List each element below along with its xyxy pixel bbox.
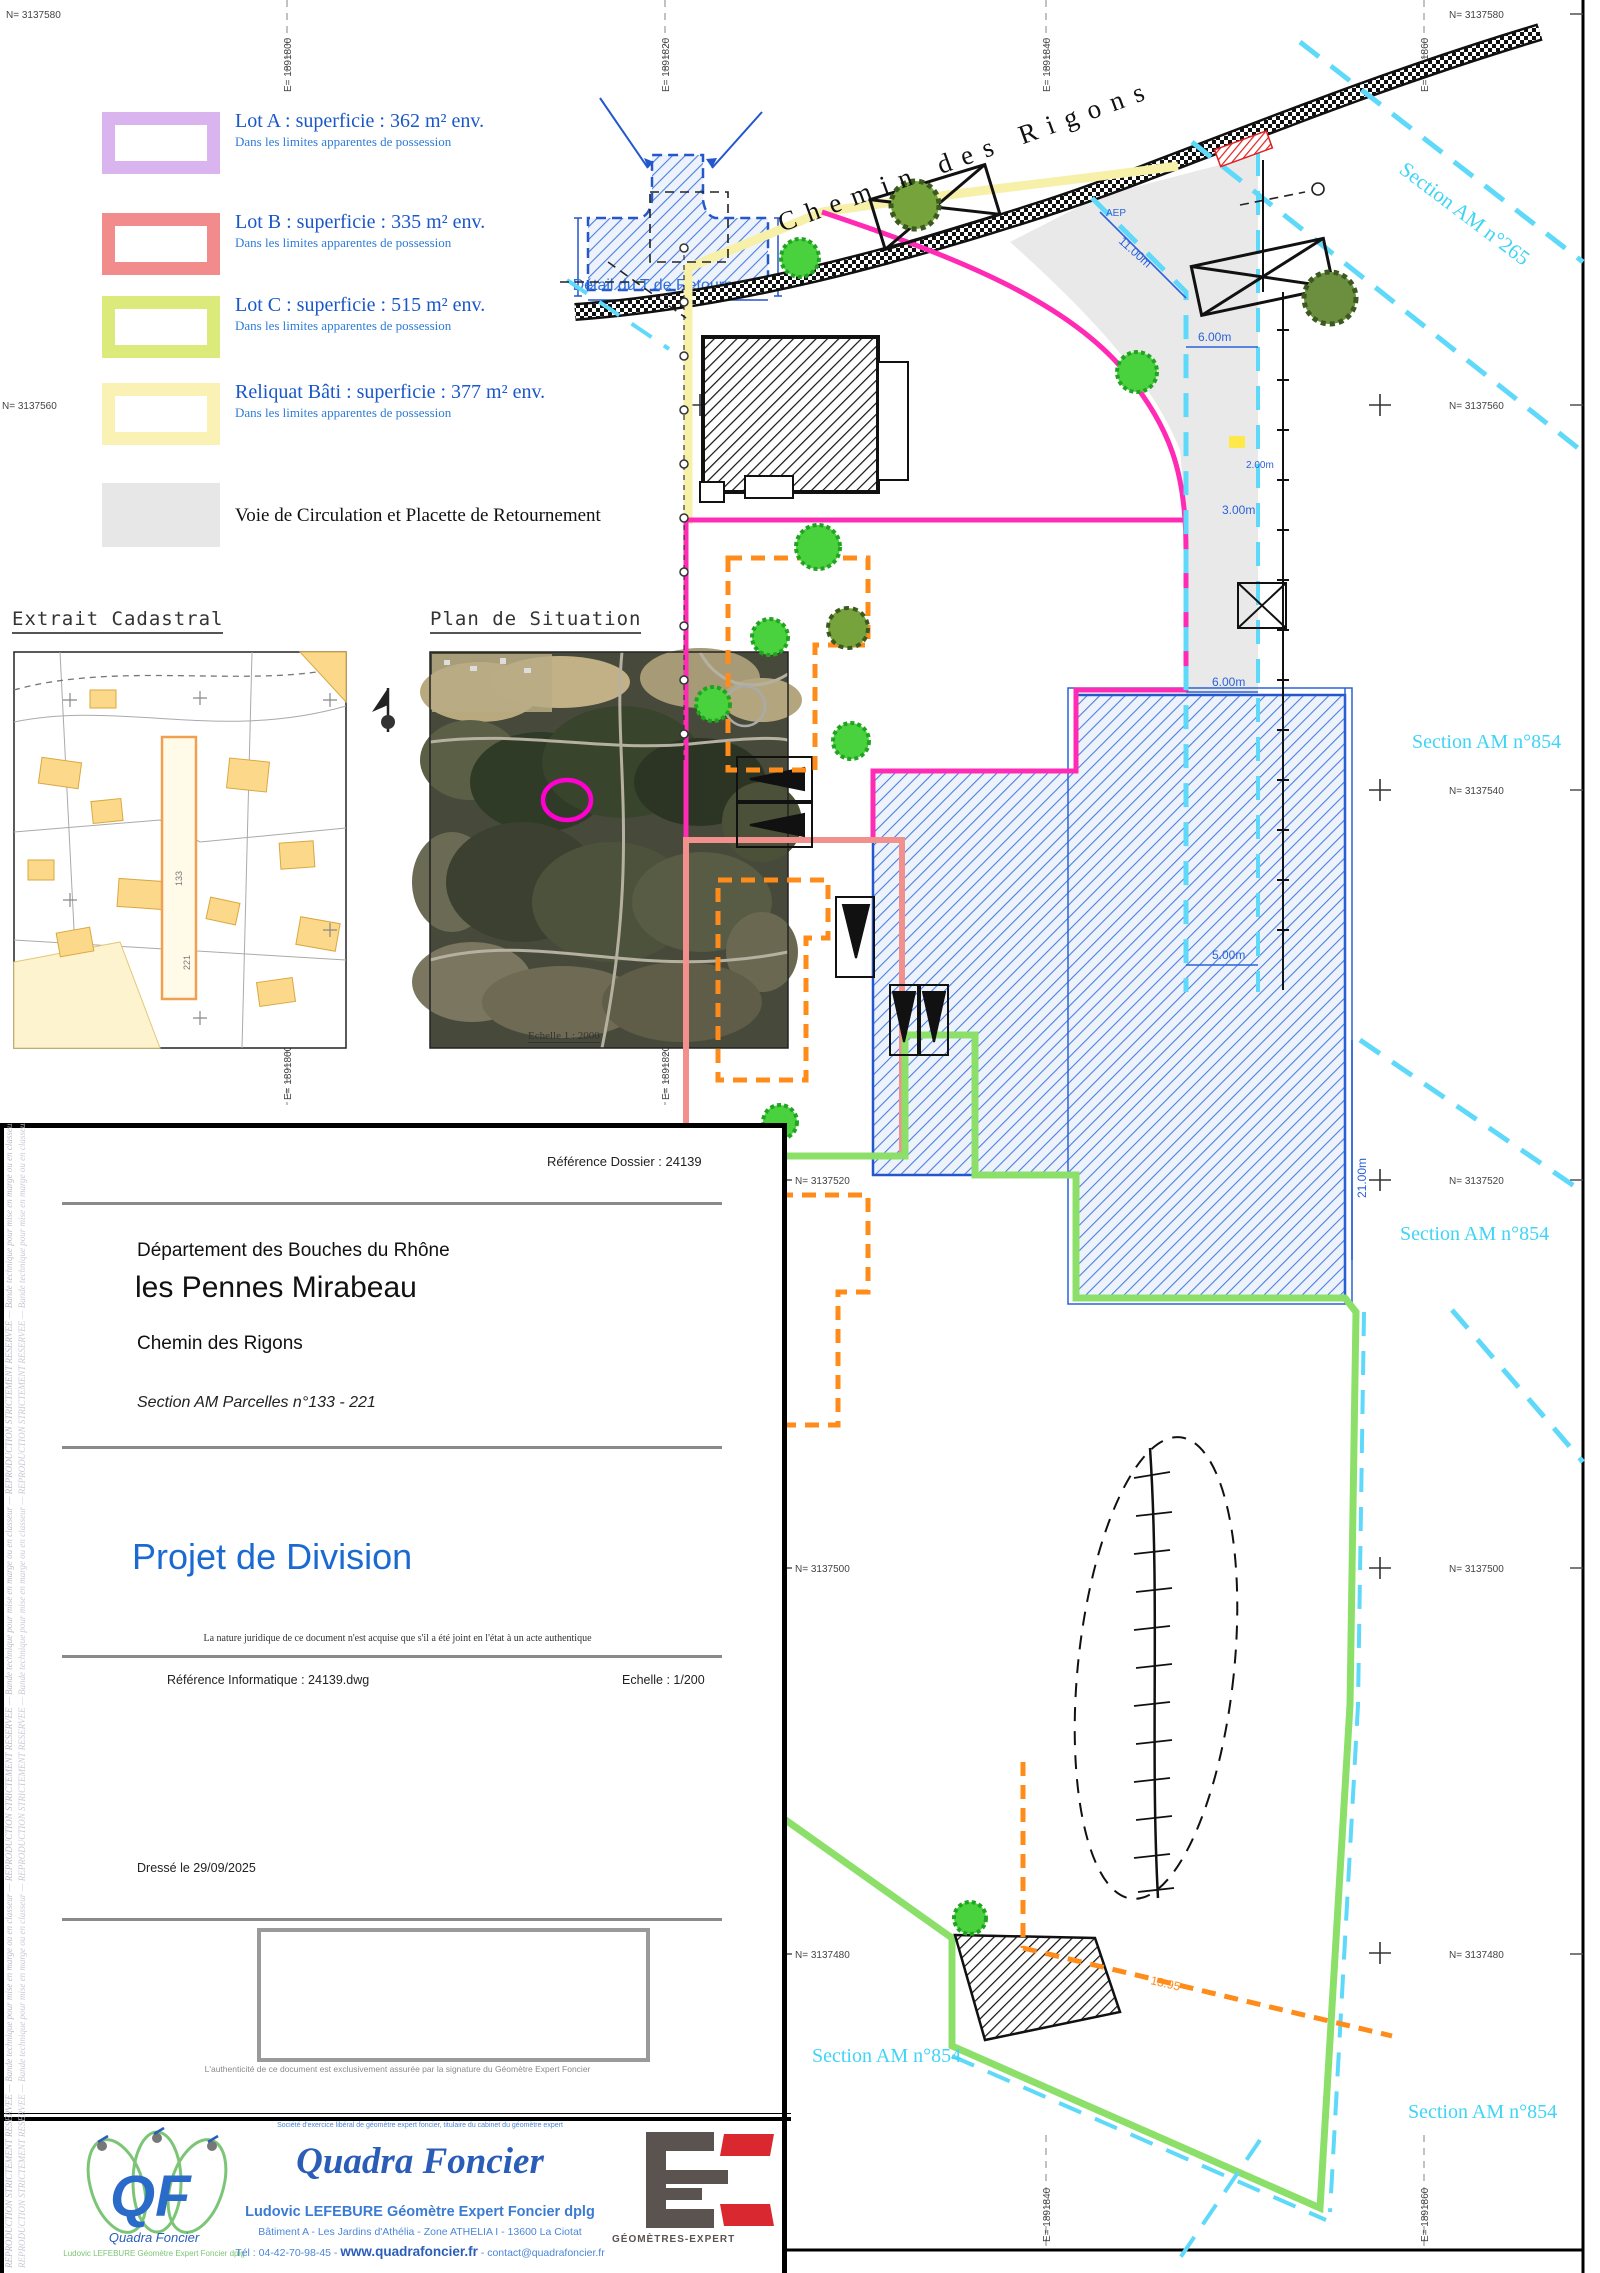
lot-c-swatch (102, 296, 220, 358)
legend-item-lot-c: Lot C : superficie : 515 m² env. Dans le… (100, 296, 620, 360)
section-854-label: Section AM n°854 (812, 2045, 961, 2067)
n-label: N= 3137580 (6, 10, 61, 21)
phone: Tél : 04-42-70-98-45 - (235, 2247, 340, 2259)
legend-title: Lot B : superficie : 335 m² env. (235, 211, 615, 234)
svg-text:QF: QF (110, 2164, 192, 2229)
e-label: E= 1891840 (1042, 2187, 1053, 2242)
nature-juridique: La nature juridique de ce document n'est… (4, 1633, 791, 1644)
legend-title: Lot C : superficie : 515 m² env. (235, 294, 615, 317)
date-dresse: Dressé le 29/09/2025 (137, 1861, 256, 1875)
footer-tagline: Société d'exercice libéral de géomètre e… (210, 2122, 630, 2129)
dim-label: 21.00m (1355, 1158, 1369, 1198)
company-address: Bâtiment A - Les Jardins d'Athélia - Zon… (200, 2226, 640, 2238)
legend-item-reliquat: Reliquat Bâti : superficie : 377 m² env.… (100, 383, 620, 447)
parcel-number: 221 (182, 955, 192, 970)
legend-sub: Dans les limites apparentes de possessio… (235, 235, 615, 251)
dim-label: 2.00m (1246, 460, 1274, 471)
authenticite-note: L'authenticité de ce document est exclus… (4, 2064, 791, 2074)
n-label: N= 3137500 (795, 1564, 850, 1575)
legend-title: Voie de Circulation et Placette de Retou… (235, 505, 601, 527)
legend-title: Reliquat Bâti : superficie : 377 m² env. (235, 381, 615, 404)
ditch-talus (1054, 1429, 1258, 1907)
cadastral-extract: 133 221 (14, 652, 346, 1048)
voie-swatch (102, 483, 220, 547)
legend-title: Lot A : superficie : 362 m² env. (235, 110, 615, 133)
footer: QF Quadra Foncier Ludovic LEFEBURE Géomè… (0, 2116, 787, 2273)
e-label: E= 1891820 (661, 1045, 672, 1100)
dim-label: 6.00m (1212, 675, 1245, 689)
departement: Département des Bouches du Rhône (137, 1240, 450, 1262)
dim-label: 6.00m (1198, 330, 1231, 344)
situation-title: Plan de Situation (430, 608, 641, 634)
qf-logo-caption: Quadra Foncier (109, 2230, 200, 2245)
section-854-label: Section AM n°854 (1400, 1223, 1549, 1245)
e-label: E= 1891840 (1042, 37, 1053, 92)
title-block: Référence Dossier : 24139 Département de… (0, 1123, 787, 2273)
section-854-label: Section AM n°854 (1408, 2101, 1557, 2123)
cadastral-title: Extrait Cadastral (12, 608, 223, 634)
commune: les Pennes Mirabeau (135, 1271, 417, 1305)
e-label: E= 1891860 (1420, 2187, 1431, 2242)
n-label: N= 3137540 (1449, 786, 1504, 797)
margin-reserve-text: REPRODUCTION STRICTEMENT RESERVEE — Band… (17, 1123, 27, 2268)
reference-dossier: Référence Dossier : 24139 (547, 1154, 702, 1169)
cadastral-scale-note: Echelle 1 : 2000 (528, 1030, 600, 1043)
geometre-name: Ludovic LEFEBURE Géomètre Expert Foncier… (200, 2204, 640, 2220)
legend-sub: Dans les limites apparentes de possessio… (235, 405, 615, 421)
north-arrow-icon (372, 688, 395, 732)
e-label: E= 1891800 (283, 37, 294, 92)
e-label: E= 1891800 (283, 1045, 294, 1100)
n-label: N= 3137480 (795, 1950, 850, 1961)
e-label: E= 1891820 (661, 37, 672, 92)
lot-a-swatch (102, 112, 220, 174)
margin-reserve-text: REPRODUCTION STRICTEMENT RESERVEE — Band… (4, 1123, 14, 2268)
dim-label: 3.00m (1222, 503, 1255, 517)
section-parcelles: Section AM Parcelles n°133 - 221 (137, 1394, 376, 1412)
legend-item-voie: Voie de Circulation et Placette de Retou… (100, 483, 620, 549)
section-265-label: Section AM n°265 (1395, 157, 1534, 270)
ruin-structure (955, 1935, 1120, 2040)
geometres-expert-logo (628, 2130, 778, 2230)
n-label: N= 3137480 (1449, 1950, 1504, 1961)
legend-sub: Dans les limites apparentes de possessio… (235, 318, 615, 334)
aep-label: AEP (1106, 208, 1126, 219)
document-title: Projet de Division (132, 1536, 412, 1578)
n-label: N= 3137520 (795, 1176, 850, 1187)
plan-sheet: E= 1891800 E= 1891820 E= 1891840 E= 1891… (0, 0, 1600, 2273)
n-label: N= 3137500 (1449, 1564, 1504, 1575)
parcel-number: 133 (174, 871, 184, 886)
legend-item-lot-b: Lot B : superficie : 335 m² env. Dans le… (100, 213, 620, 277)
n-label: N= 3137520 (1449, 1176, 1504, 1187)
email[interactable]: - contact@quadrafoncier.fr (478, 2247, 605, 2259)
reliquat-swatch (102, 383, 220, 445)
legend-sub: Dans les limites apparentes de possessio… (235, 134, 615, 150)
existing-building (700, 337, 908, 502)
lot-b-swatch (102, 213, 220, 275)
orange-dim-label: 13.95 (1149, 1973, 1182, 1993)
dim-label: 5.00m (1212, 948, 1245, 962)
adresse: Chemin des Rigons (137, 1333, 303, 1355)
n-label: N= 3137560 (2, 401, 57, 412)
section-854-label: Section AM n°854 (1412, 731, 1561, 753)
reference-informatique: Référence Informatique : 24139.dwg (167, 1673, 369, 1687)
n-label: N= 3137580 (1449, 10, 1504, 21)
ge-logo-text: GÉOMÈTRES-EXPERT (612, 2234, 792, 2245)
n-label: N= 3137560 (1449, 401, 1504, 412)
echelle: Echelle : 1/200 (622, 1673, 705, 1687)
yellow-tick (1229, 436, 1245, 448)
company-name: Quadra Foncier (200, 2140, 640, 2183)
website-link[interactable]: www.quadrafoncier.fr (340, 2244, 478, 2259)
contact-line: Tél : 04-42-70-98-45 - www.quadrafoncier… (200, 2244, 640, 2259)
legend-item-lot-a: Lot A : superficie : 362 m² env. Dans le… (100, 112, 620, 176)
signature-box (257, 1928, 650, 2062)
